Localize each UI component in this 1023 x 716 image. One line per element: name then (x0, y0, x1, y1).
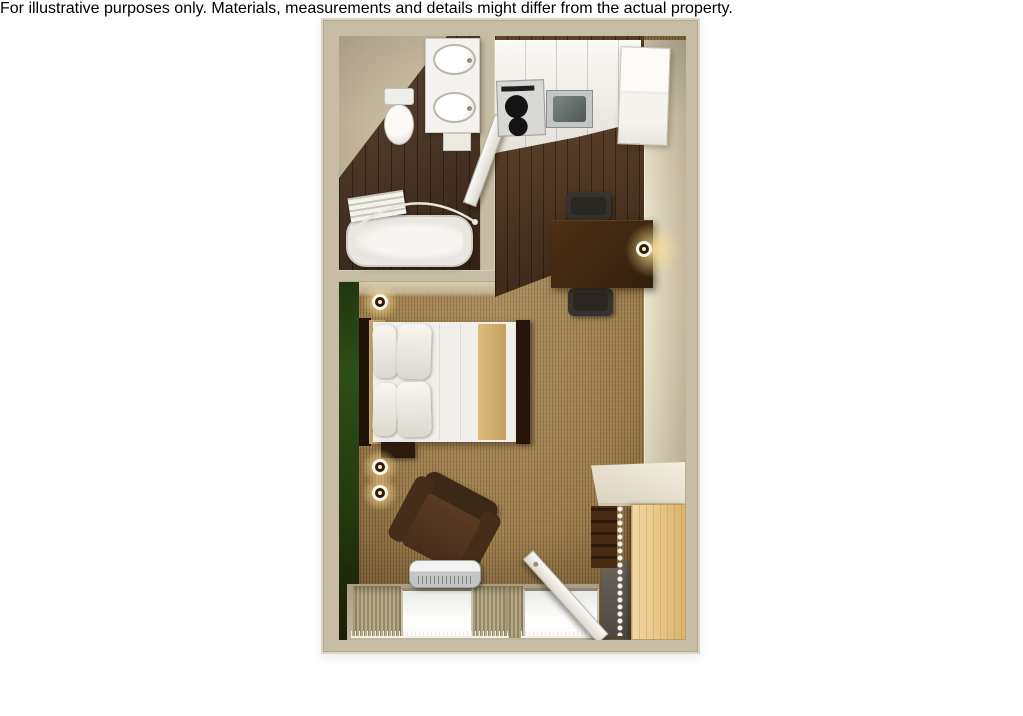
room-interior (339, 36, 686, 640)
vanity-sink-bottom (433, 92, 476, 123)
duvet-crease (460, 324, 461, 440)
dining-chair-south (568, 288, 613, 316)
wall-sconce-bed (372, 294, 388, 310)
bathroom-bedroom-wall (339, 270, 495, 282)
pillow (396, 323, 432, 379)
bed-runner (478, 324, 506, 440)
vanity-sink-top (433, 44, 476, 75)
clothes-rod-hangers (615, 506, 625, 636)
disclaimer-caption: For illustrative purposes only. Material… (0, 0, 733, 18)
table-lamp-glow (624, 221, 682, 279)
duvet-crease (439, 324, 440, 440)
tv-dresser (602, 347, 657, 467)
closet-shelf (591, 462, 685, 506)
page: For illustrative purposes only. Material… (0, 0, 1023, 716)
footboard (516, 320, 530, 444)
burner-icon (508, 117, 528, 137)
wall-sconce-lower (372, 485, 388, 501)
wardrobe-cabinet (631, 504, 686, 640)
floor-plan (321, 18, 700, 654)
stovetop (496, 79, 546, 137)
pillow (396, 381, 432, 437)
pillow (372, 325, 398, 379)
kitchen-sink (546, 90, 593, 128)
curtain-rod (351, 631, 509, 638)
dining-chair-north (566, 192, 611, 220)
table-lamp (636, 241, 652, 257)
shower-curtain-rod (339, 174, 489, 244)
stove-vent (501, 86, 534, 92)
toilet-bowl (384, 104, 414, 145)
wall-sconce-upper (372, 459, 388, 475)
pillow (372, 383, 398, 437)
burner-icon (505, 95, 529, 119)
refrigerator-cabinet (617, 46, 670, 146)
vanity-shelf (443, 133, 471, 151)
toilet-tank (384, 88, 414, 105)
ptac-heater (409, 560, 481, 588)
shelving-unit (591, 506, 617, 568)
